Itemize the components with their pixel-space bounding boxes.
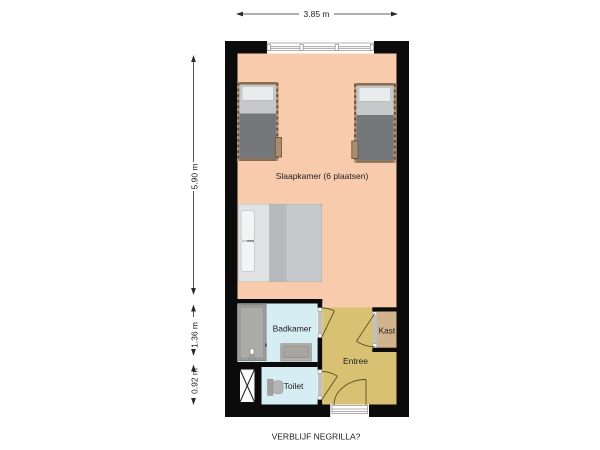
svg-text:5.90 m: 5.90 m bbox=[190, 164, 200, 190]
svg-text:0.92 m: 0.92 m bbox=[190, 368, 200, 394]
svg-text:Slaapkamer (6 plaatsen): Slaapkamer (6 plaatsen) bbox=[276, 171, 369, 181]
svg-text:Toilet: Toilet bbox=[284, 381, 304, 391]
svg-text:Badkamer: Badkamer bbox=[273, 324, 312, 334]
svg-text:Kast: Kast bbox=[379, 325, 396, 335]
svg-text:Entree: Entree bbox=[343, 356, 368, 366]
svg-text:3.85 m: 3.85 m bbox=[304, 9, 330, 19]
svg-text:1.36 m: 1.36 m bbox=[190, 322, 200, 348]
svg-text:VERBLIJF NEGRILLA?: VERBLIJF NEGRILLA? bbox=[272, 431, 361, 441]
